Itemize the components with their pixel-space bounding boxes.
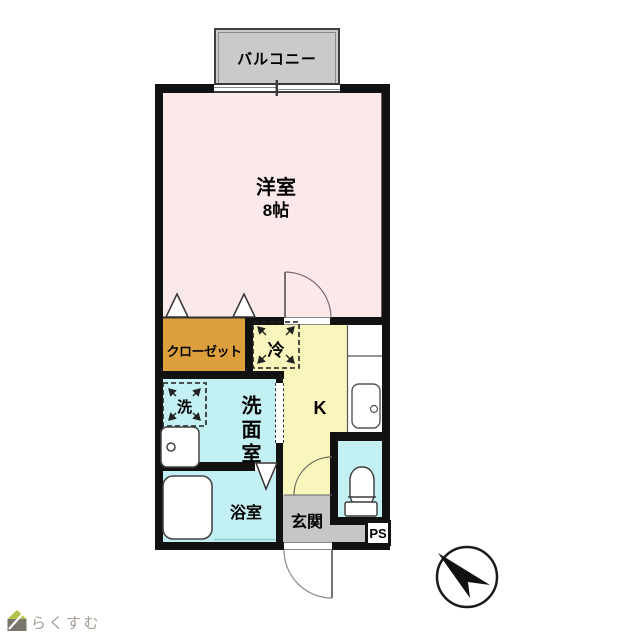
bathroom-label: 浴室 bbox=[216, 499, 276, 523]
toilet-area bbox=[338, 441, 382, 517]
wall-toilet-top bbox=[330, 432, 390, 441]
pipe-space-label: PS bbox=[369, 526, 386, 541]
main-room-label: 洋室 bbox=[216, 176, 336, 200]
floor-plan-canvas: PS bbox=[0, 0, 640, 640]
entrance-area-right bbox=[330, 523, 367, 543]
wall-bottom-left bbox=[155, 542, 284, 550]
washer-label: 洗 bbox=[163, 396, 206, 417]
washroom-label: 洗面室 bbox=[235, 386, 264, 476]
closet-label: クローゼット bbox=[163, 341, 245, 360]
wall-washroom-top bbox=[155, 371, 284, 379]
logo-house-icon bbox=[8, 610, 27, 631]
wall-closet-right bbox=[245, 317, 253, 379]
kitchen-label: K bbox=[300, 398, 340, 419]
washroom-opening bbox=[275, 383, 284, 443]
wall-toilet-left bbox=[330, 432, 338, 525]
entrance-door-opening bbox=[284, 542, 332, 550]
wall-mid-right bbox=[330, 317, 390, 325]
kitchen-counter bbox=[347, 324, 382, 432]
entrance-label: 玄関 bbox=[283, 508, 331, 532]
balcony-label: バルコニー bbox=[214, 48, 340, 69]
balcony-window bbox=[214, 83, 340, 93]
wall-left bbox=[155, 84, 163, 550]
main-room-size-label: 8帖 bbox=[216, 200, 336, 222]
door-arc-entrance bbox=[284, 550, 332, 598]
north-arrow-compass-icon bbox=[437, 547, 497, 607]
pipe-space-box: PS bbox=[365, 520, 391, 546]
wall-top-left bbox=[155, 84, 214, 93]
main-room-door-opening bbox=[284, 317, 330, 325]
logo-text: らくすむ bbox=[31, 612, 101, 633]
fridge-label: 冷 bbox=[253, 336, 299, 361]
